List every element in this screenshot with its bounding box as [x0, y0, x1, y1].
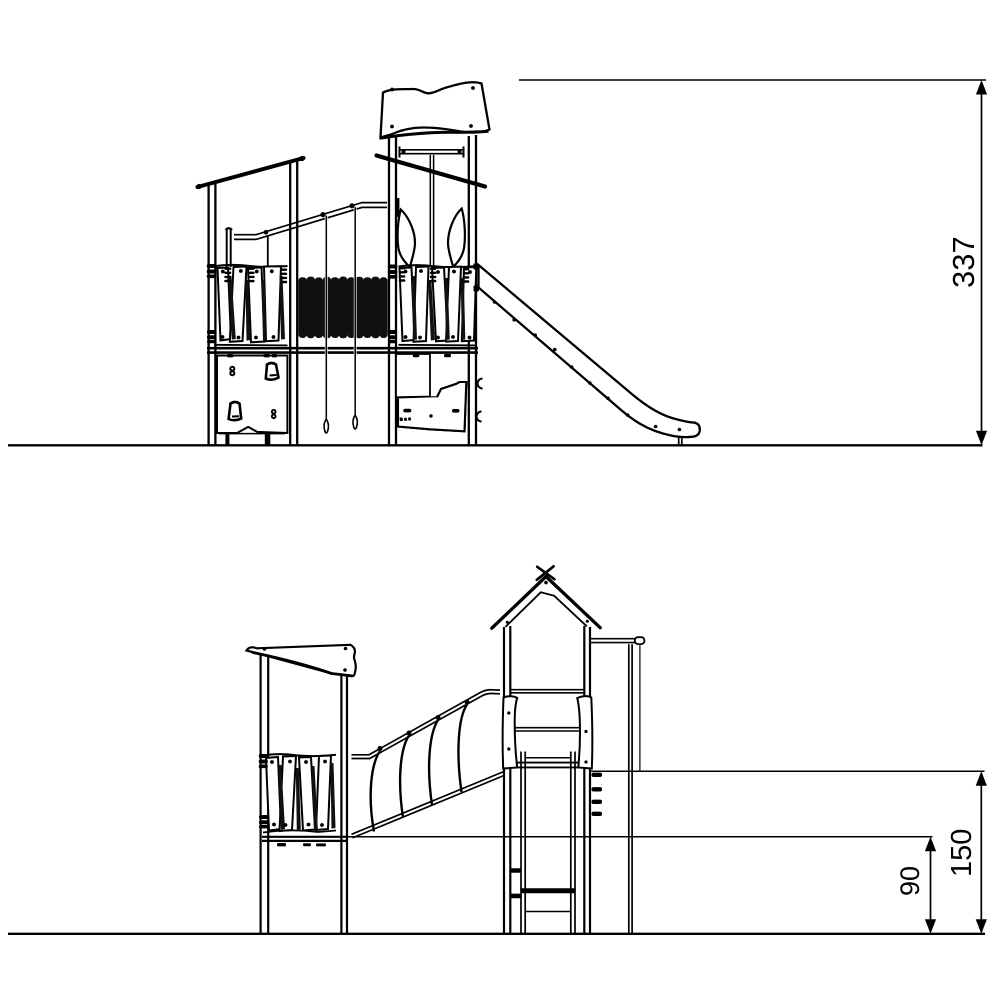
svg-text:337: 337: [946, 236, 981, 288]
svg-text:90: 90: [895, 866, 925, 896]
svg-text:150: 150: [946, 829, 978, 877]
